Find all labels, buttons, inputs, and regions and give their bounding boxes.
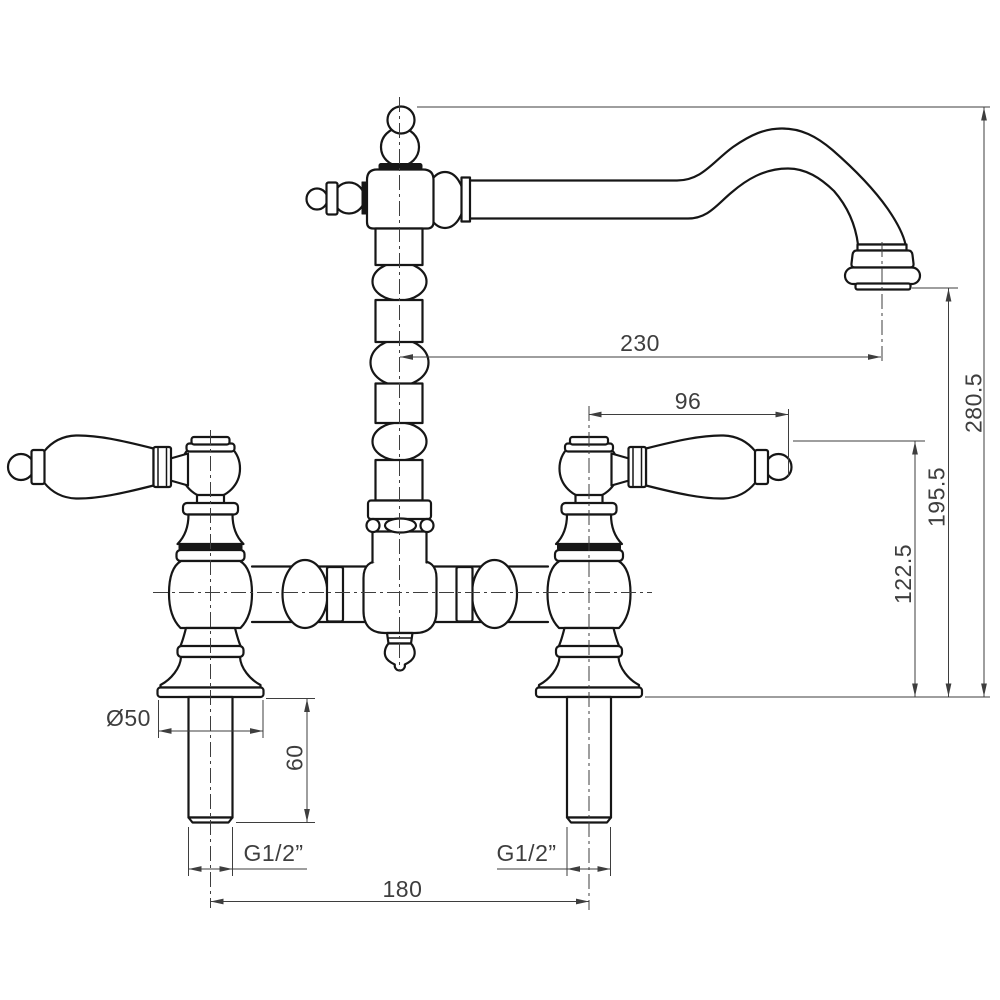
spout-arm: [469, 129, 906, 245]
dim-label-handle-height: 122.5: [890, 544, 916, 604]
bridge-bulge-left: [283, 560, 328, 628]
dim-label-handle-length: 96: [675, 388, 702, 414]
outlet-cap: [856, 284, 911, 290]
dim-label-thread-right: G1/2”: [497, 840, 557, 866]
lever-handle-right: [612, 435, 792, 498]
handle-end-ball: [8, 454, 34, 480]
column-bead-left: [367, 519, 380, 532]
dim-label-thread-left: G1/2”: [244, 840, 304, 866]
spout-junction-body: [367, 170, 434, 229]
dimension-spout-reach: 230: [400, 330, 881, 360]
lever-handle-left: [8, 435, 188, 498]
dimension-shank-length: 60: [236, 699, 315, 823]
dimension-base-diameter: Ø50: [106, 700, 263, 738]
handle-end-ferrule: [32, 450, 45, 484]
dimension-thread-right: G1/2”: [497, 827, 611, 876]
column-bead-center: [385, 519, 416, 533]
dim-label-base-diameter: Ø50: [106, 705, 151, 731]
dimension-handle-height: 122.5: [890, 442, 918, 697]
dim-label-shank-length: 60: [282, 744, 308, 771]
left-ornament-ball-small: [307, 189, 328, 210]
handle-grip: [44, 435, 154, 498]
spout-ferrule: [462, 178, 471, 222]
bridge-bulge-right: [472, 560, 517, 628]
drawing-sheet: 230 96 280.5 195.5: [0, 0, 1000, 1000]
dim-label-total-height: 280.5: [961, 373, 987, 433]
handle-connector: [171, 454, 189, 486]
dimension-total-height: 280.5: [961, 108, 987, 697]
dim-label-hole-centres: 180: [383, 876, 423, 902]
spout-finial-ball-top: [388, 107, 415, 134]
dim-label-spout-reach: 230: [620, 330, 660, 356]
left-ornament-ferrule: [327, 183, 338, 215]
faucet-technical-drawing: 230 96 280.5 195.5: [0, 0, 1000, 1000]
column-bead-right: [421, 519, 434, 532]
dimension-hole-centres: 180: [211, 876, 590, 904]
dim-label-spout-outlet-height: 195.5: [924, 467, 950, 527]
handle-inner-ferrule: [154, 447, 172, 487]
bridge-ring-left: [327, 567, 343, 622]
dimension-spout-outlet-height: 195.5: [924, 289, 952, 697]
bridge-ring-right: [457, 567, 473, 622]
dimension-thread-left: G1/2”: [189, 827, 308, 876]
